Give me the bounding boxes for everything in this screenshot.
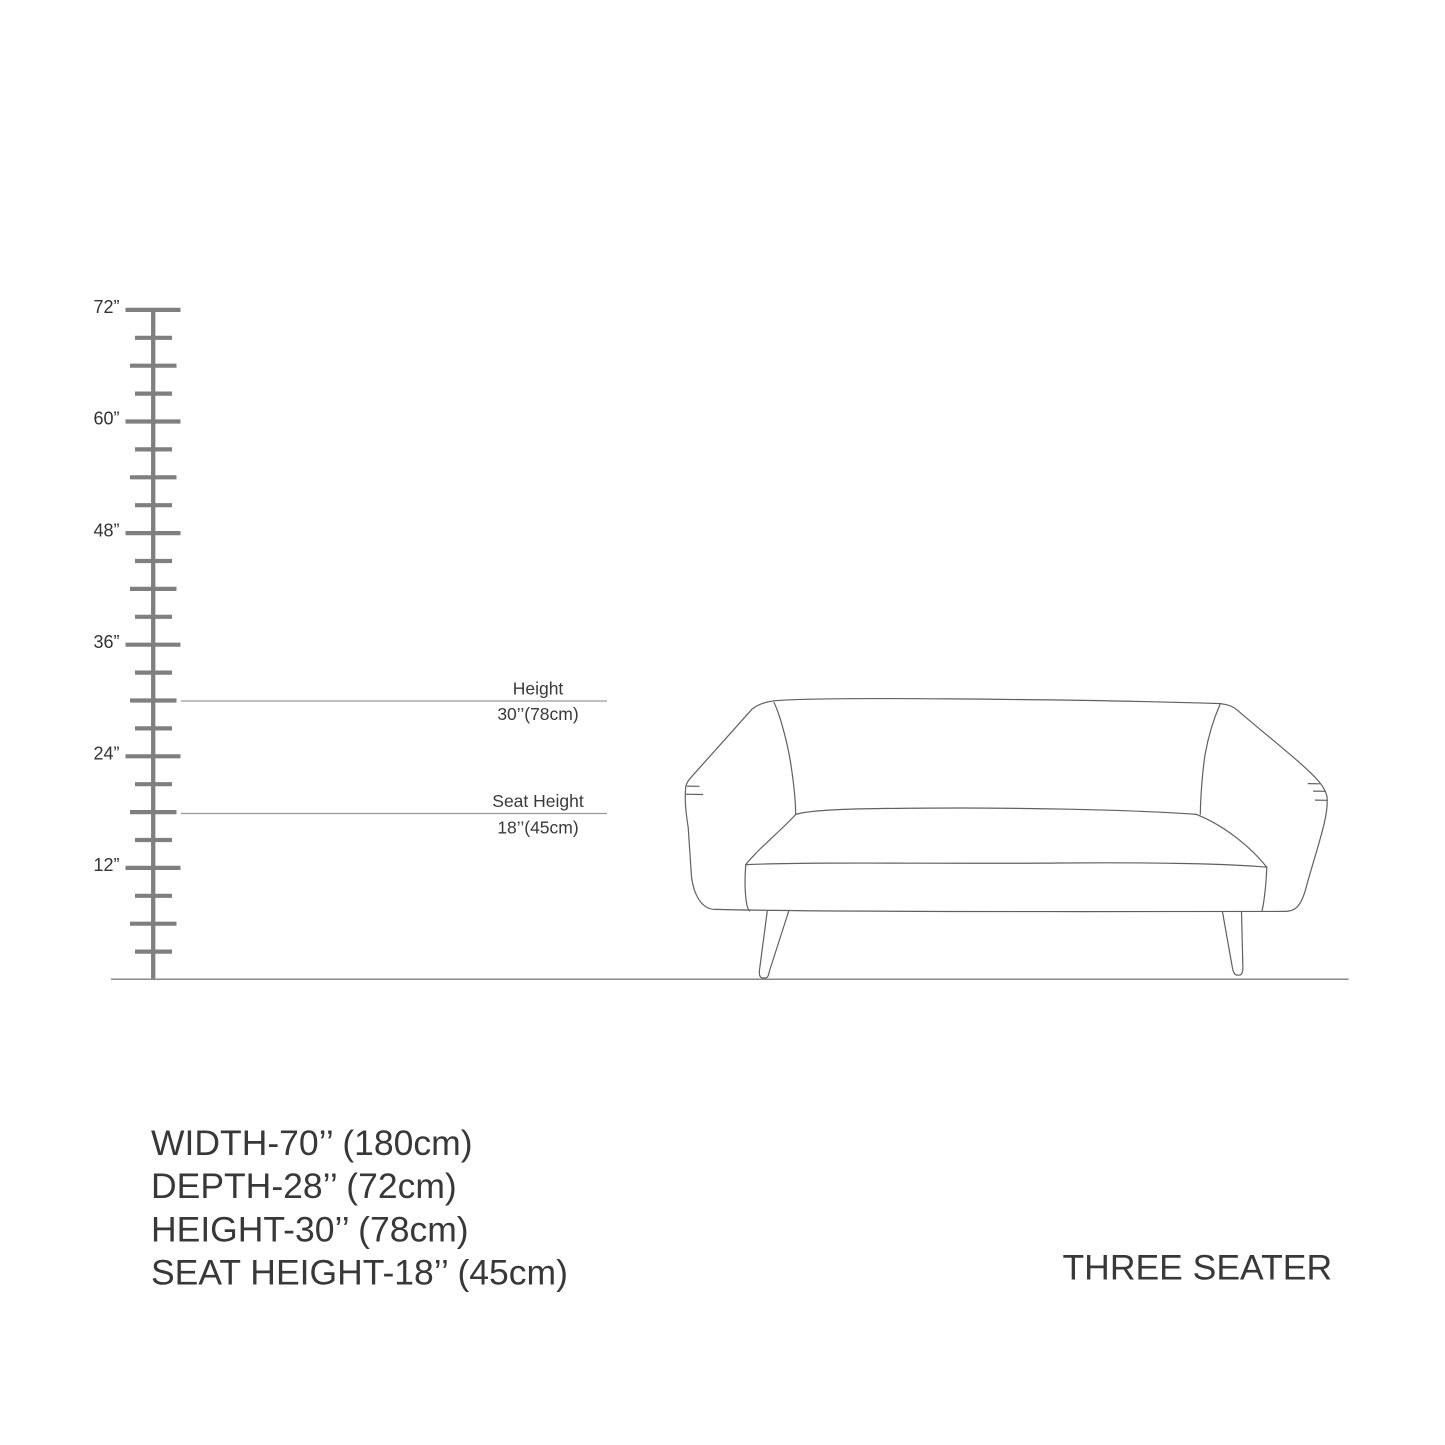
svg-text:HEIGHT-30’’ (78cm): HEIGHT-30’’ (78cm) <box>151 1209 469 1249</box>
svg-text:36”: 36” <box>93 632 119 652</box>
svg-text:SEAT HEIGHT-18’’ (45cm): SEAT HEIGHT-18’’ (45cm) <box>151 1253 568 1293</box>
svg-text:24”: 24” <box>93 744 119 764</box>
svg-text:Height: Height <box>513 679 564 699</box>
svg-text:THREE SEATER: THREE SEATER <box>1063 1248 1333 1288</box>
svg-text:18’’(45cm): 18’’(45cm) <box>497 817 578 837</box>
svg-text:30’’(78cm): 30’’(78cm) <box>497 704 578 724</box>
svg-text:Seat Height: Seat Height <box>492 791 584 811</box>
svg-text:12”: 12” <box>93 855 119 875</box>
svg-text:60”: 60” <box>93 409 119 429</box>
svg-text:72”: 72” <box>93 297 119 317</box>
svg-text:WIDTH-70’’ (180cm): WIDTH-70’’ (180cm) <box>151 1123 473 1163</box>
svg-text:DEPTH-28’’ (72cm): DEPTH-28’’ (72cm) <box>151 1166 457 1206</box>
svg-text:48”: 48” <box>93 520 119 540</box>
